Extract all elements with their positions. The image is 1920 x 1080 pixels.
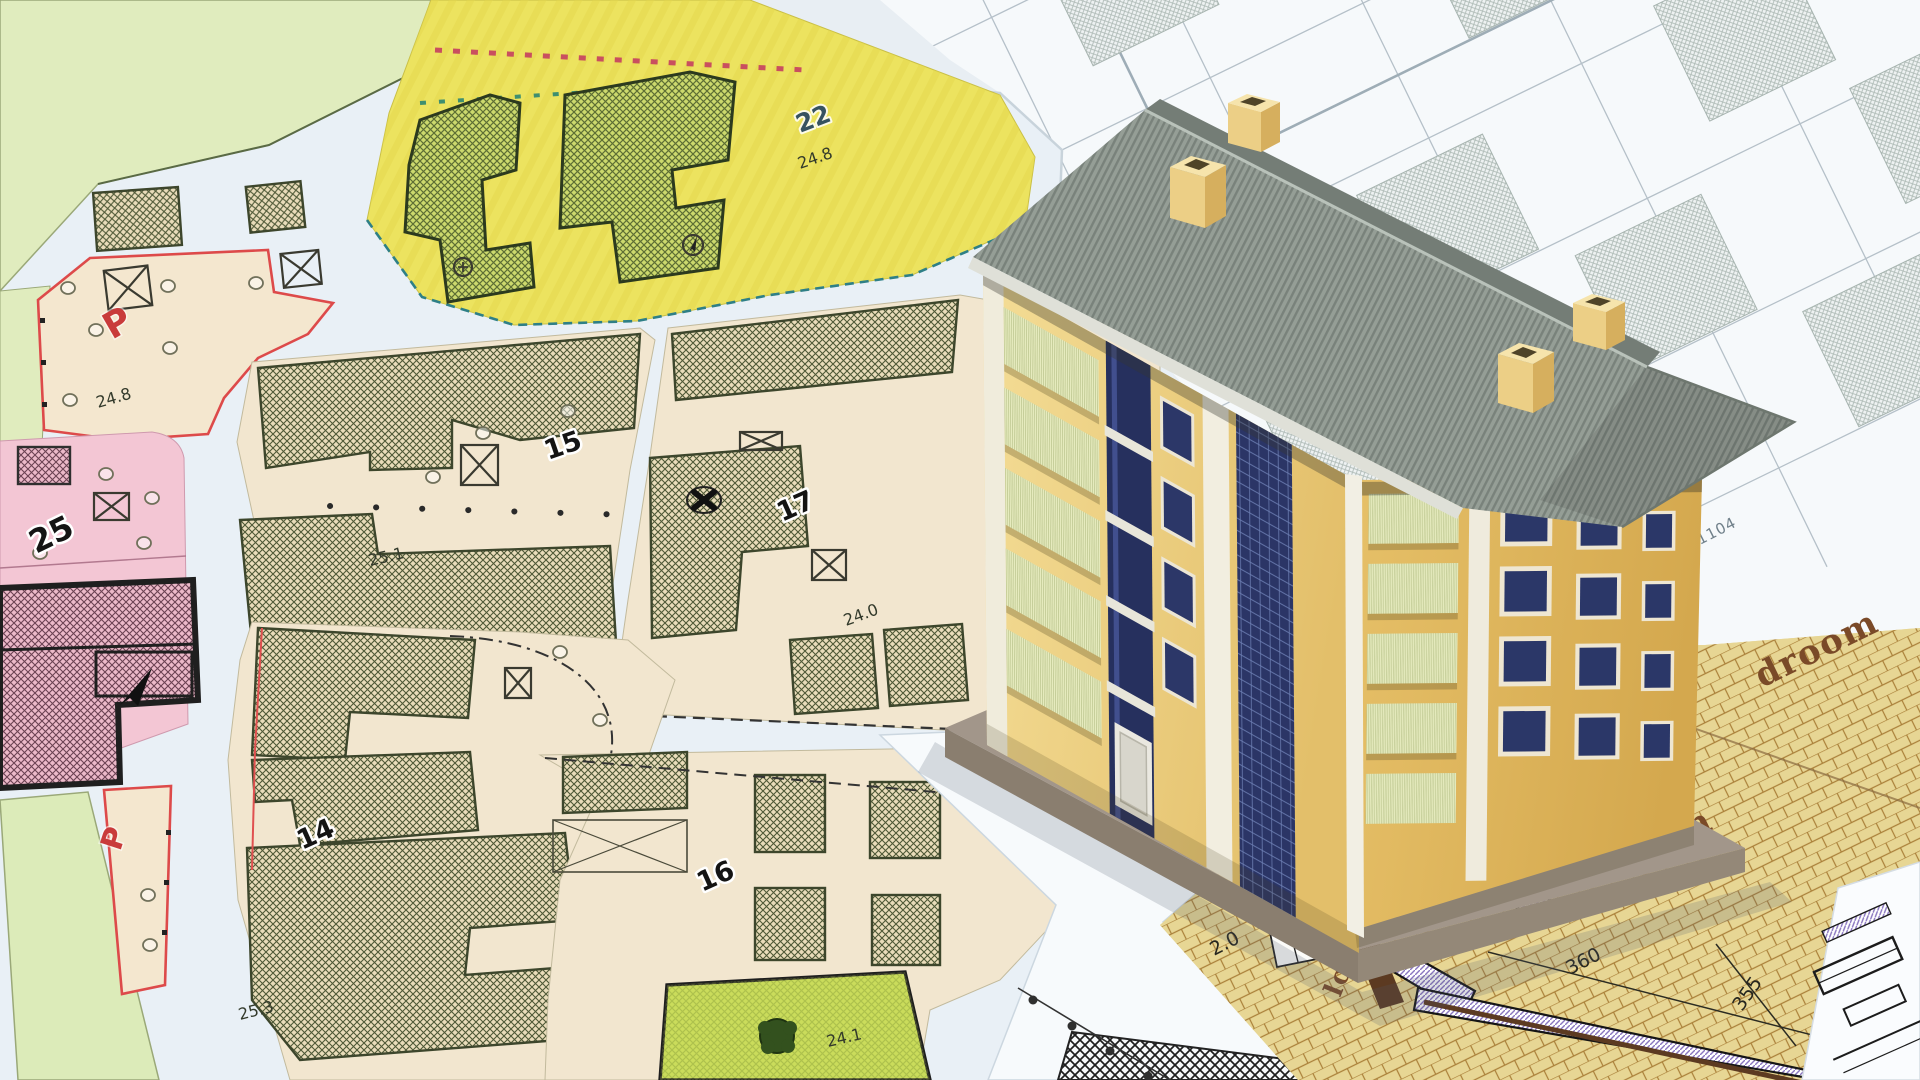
building-hatch [790,634,878,714]
building-hatch-box [870,782,940,858]
chimney [1498,343,1554,413]
building-hatch-box [93,187,182,251]
balcony-stack-right [1365,493,1459,824]
balcony-stack-left [1004,307,1102,746]
building-hatch [563,752,687,813]
green-patch-24-1: 24.1 [660,972,930,1080]
glazed-stairwell [1236,413,1296,917]
building-hatch [884,624,968,706]
white-pillar [1466,481,1491,881]
chimney [1170,156,1226,228]
photo-model-building-on-plans: 1104 22 24.8 [0,0,1920,1080]
white-pillar [1202,395,1232,883]
building-hatch-box [755,888,825,960]
building-hatch-box [755,775,825,852]
corner-strip [1345,474,1364,938]
tree-icon [758,1019,797,1054]
chimney [1228,94,1280,152]
building-hatch-box [246,181,306,232]
corner-pillar [983,272,1007,756]
building-hatch-box [18,447,70,484]
building-hatch-box [872,895,940,965]
scene-canvas: 1104 22 24.8 [0,0,1920,1080]
chimney [1573,294,1625,350]
